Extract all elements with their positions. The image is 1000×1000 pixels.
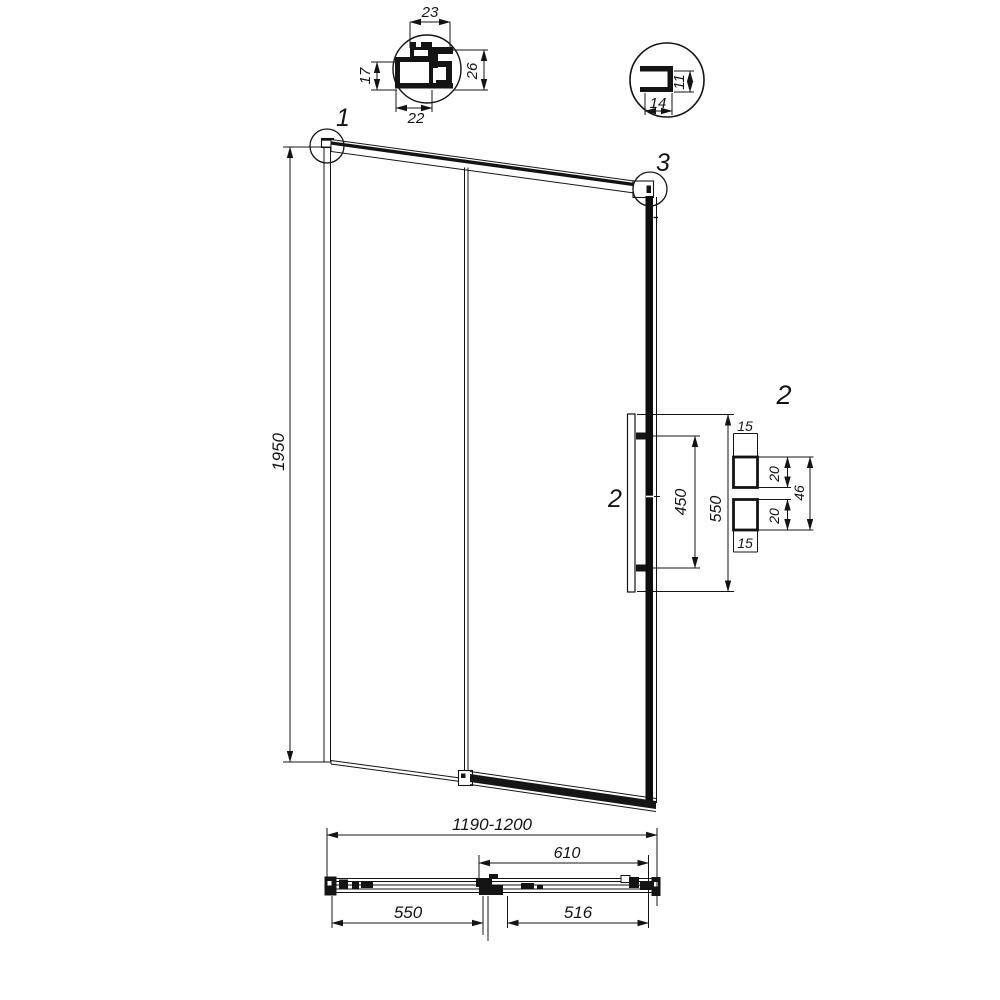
bottom-sliding-rail xyxy=(470,772,656,812)
dim-label-20-bottom: 20 xyxy=(766,508,782,525)
dim-label-23: 23 xyxy=(421,4,439,21)
dim-label-15-bottom: 15 xyxy=(737,535,753,551)
dim-label-11: 11 xyxy=(671,74,688,90)
dim-label-516: 516 xyxy=(564,903,593,922)
dim-label-20-top: 20 xyxy=(766,466,782,483)
dim-label-550-handle: 550 xyxy=(708,496,725,523)
callout-label-3: 3 xyxy=(656,149,670,177)
callout-label-2: 2 xyxy=(607,485,622,513)
callout-label-1: 1 xyxy=(336,104,350,132)
top-roller-bracket xyxy=(633,181,654,198)
dim-label-22: 22 xyxy=(407,110,425,127)
handle-detail-2: 2 550 450 15 20 xyxy=(637,380,814,592)
left-wall-profile xyxy=(322,139,334,763)
dim-label-15-top: 15 xyxy=(737,418,753,434)
dim-label-610: 610 xyxy=(554,845,581,862)
dim-label-46: 46 xyxy=(791,485,807,501)
shower-door-drawing: 23 17 26 22 11 14 xyxy=(0,0,1000,1000)
aluminium-profile-a-shape xyxy=(395,42,453,89)
sliding-door-edge xyxy=(646,196,661,803)
handle-mount-bottom xyxy=(636,565,646,572)
profile-detail-a: 23 17 26 22 xyxy=(357,4,488,127)
left-end-cap xyxy=(325,877,337,896)
aluminium-profile-b-shape xyxy=(640,66,673,92)
top-rail xyxy=(331,140,652,196)
dim-label-550-plan: 550 xyxy=(394,903,423,922)
detail-b-circle xyxy=(630,43,704,117)
dim-label-17: 17 xyxy=(357,67,374,84)
door-elevation: 1950 1 3 2 xyxy=(269,104,670,812)
bottom-fixed-rail xyxy=(331,761,464,783)
mount-pad-top xyxy=(734,457,758,488)
middle-glass-edge xyxy=(465,168,469,781)
plan-view: 1190-1200 610 550 516 xyxy=(325,815,661,941)
dim-label-14: 14 xyxy=(650,95,667,112)
dim-label-1190-1200: 1190-1200 xyxy=(452,815,533,834)
profile-detail-b: 11 14 xyxy=(630,43,704,117)
dim-label-26: 26 xyxy=(464,62,481,80)
mount-pad-bottom xyxy=(734,500,758,531)
dim-label-450: 450 xyxy=(673,489,690,516)
door-handle xyxy=(628,414,647,592)
detail-2-label: 2 xyxy=(775,380,791,410)
handle-mount-top xyxy=(636,433,646,440)
technical-drawing-page: 23 17 26 22 11 14 xyxy=(0,0,1000,1000)
dim-label-1950: 1950 xyxy=(269,433,288,471)
dim-15-top xyxy=(734,434,758,458)
